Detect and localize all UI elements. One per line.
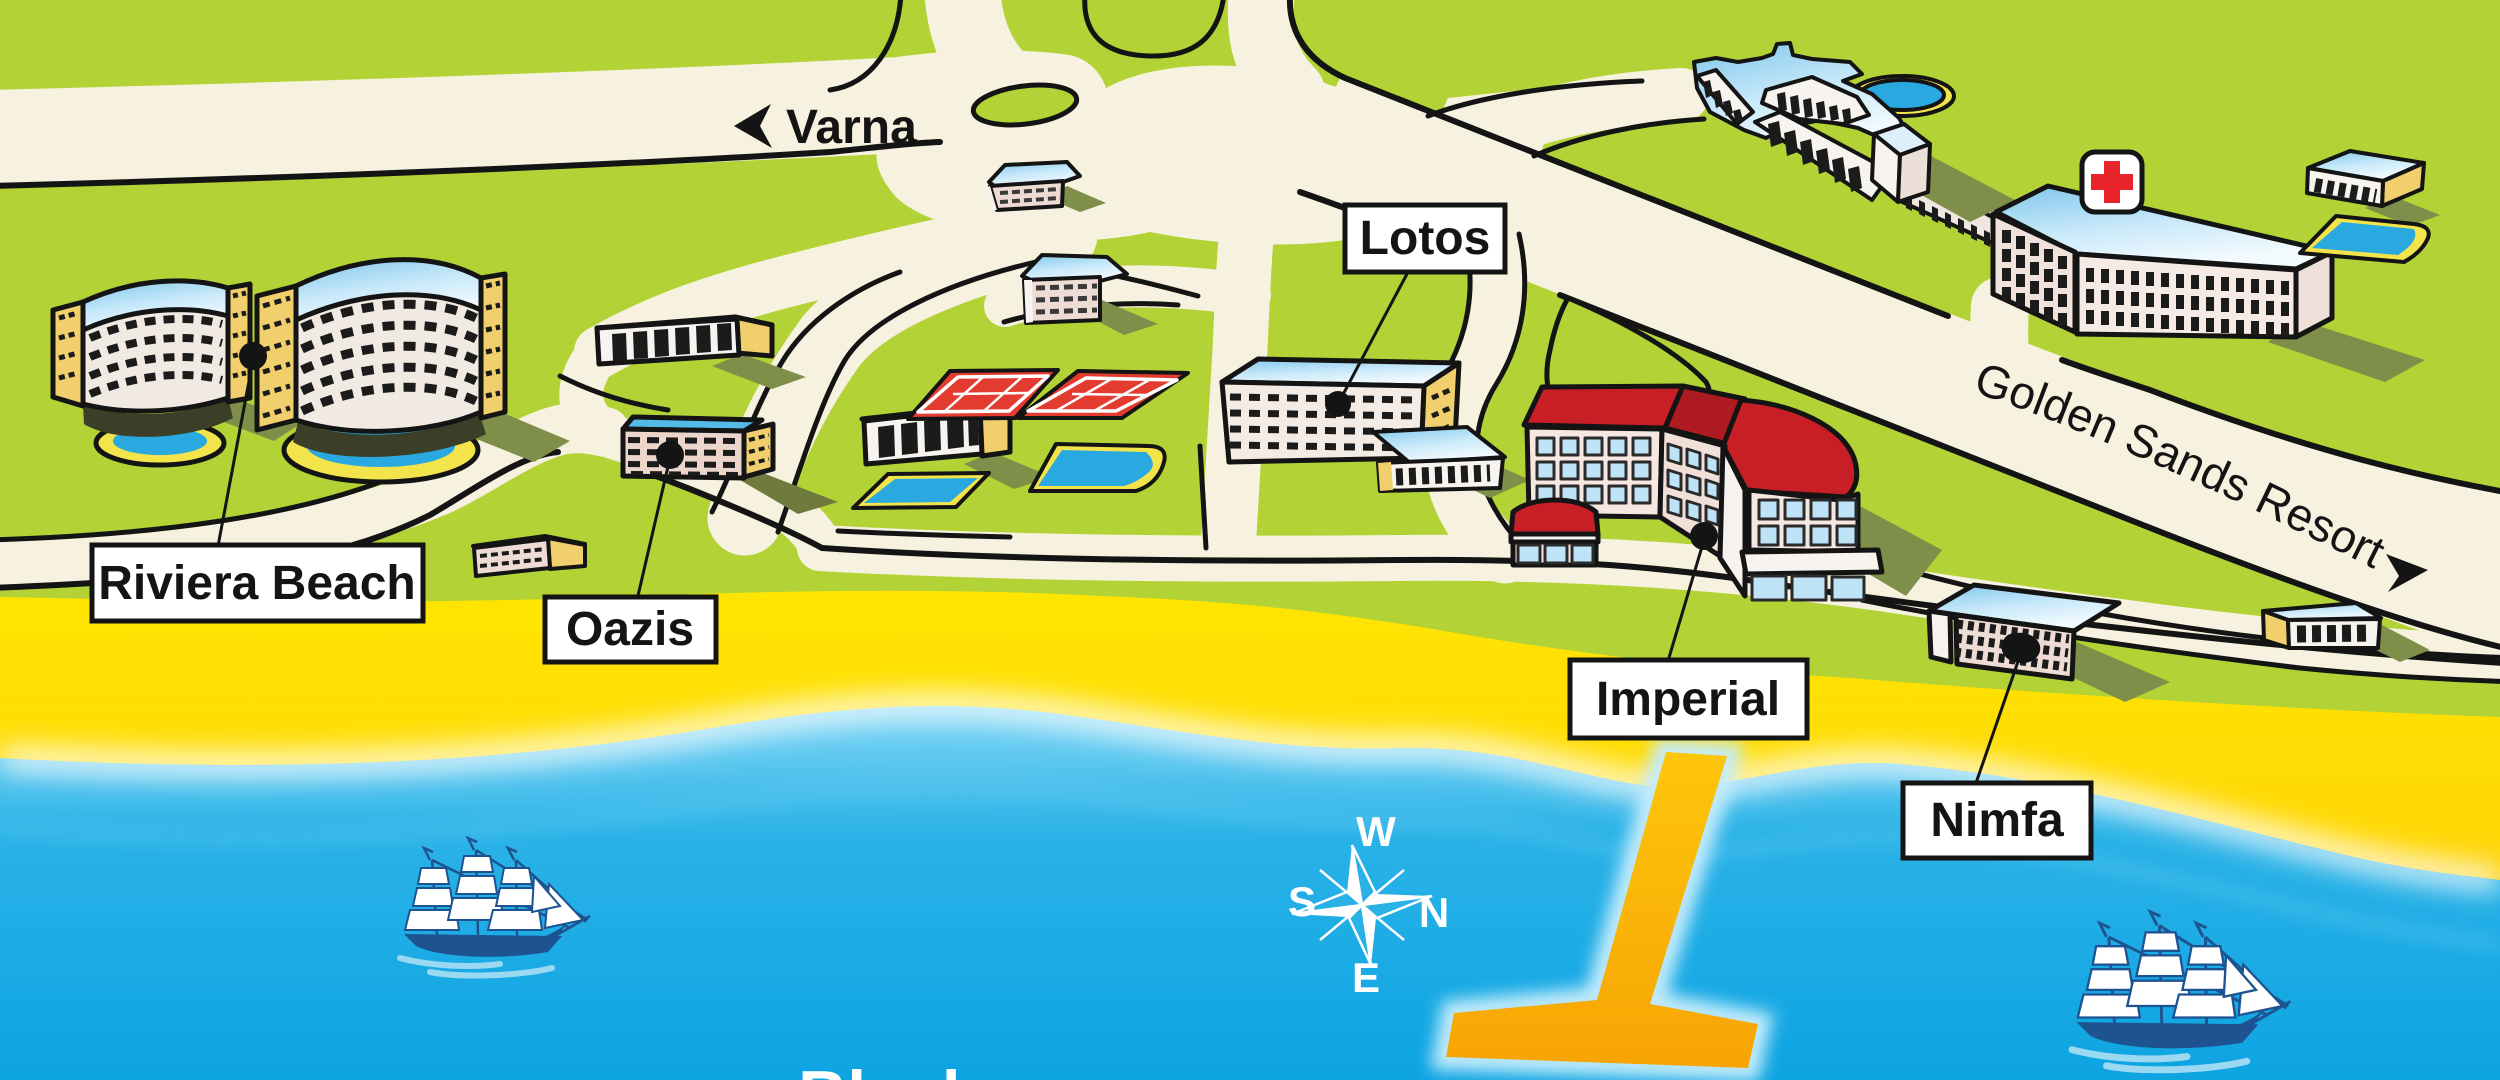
svg-text:Lotos: Lotos xyxy=(1360,212,1491,265)
svg-text:Varna: Varna xyxy=(786,101,917,154)
svg-text:E: E xyxy=(1352,954,1380,1001)
svg-text:Nimfa: Nimfa xyxy=(1930,794,2064,847)
svg-text:Black sea: Black sea xyxy=(798,1057,1113,1080)
svg-text:W: W xyxy=(1356,808,1396,855)
svg-text:N: N xyxy=(1419,889,1449,936)
svg-text:Oazis: Oazis xyxy=(566,603,694,656)
svg-text:Riviera Beach: Riviera Beach xyxy=(98,557,416,610)
svg-text:S: S xyxy=(1288,878,1316,925)
svg-text:Imperial: Imperial xyxy=(1596,673,1780,726)
